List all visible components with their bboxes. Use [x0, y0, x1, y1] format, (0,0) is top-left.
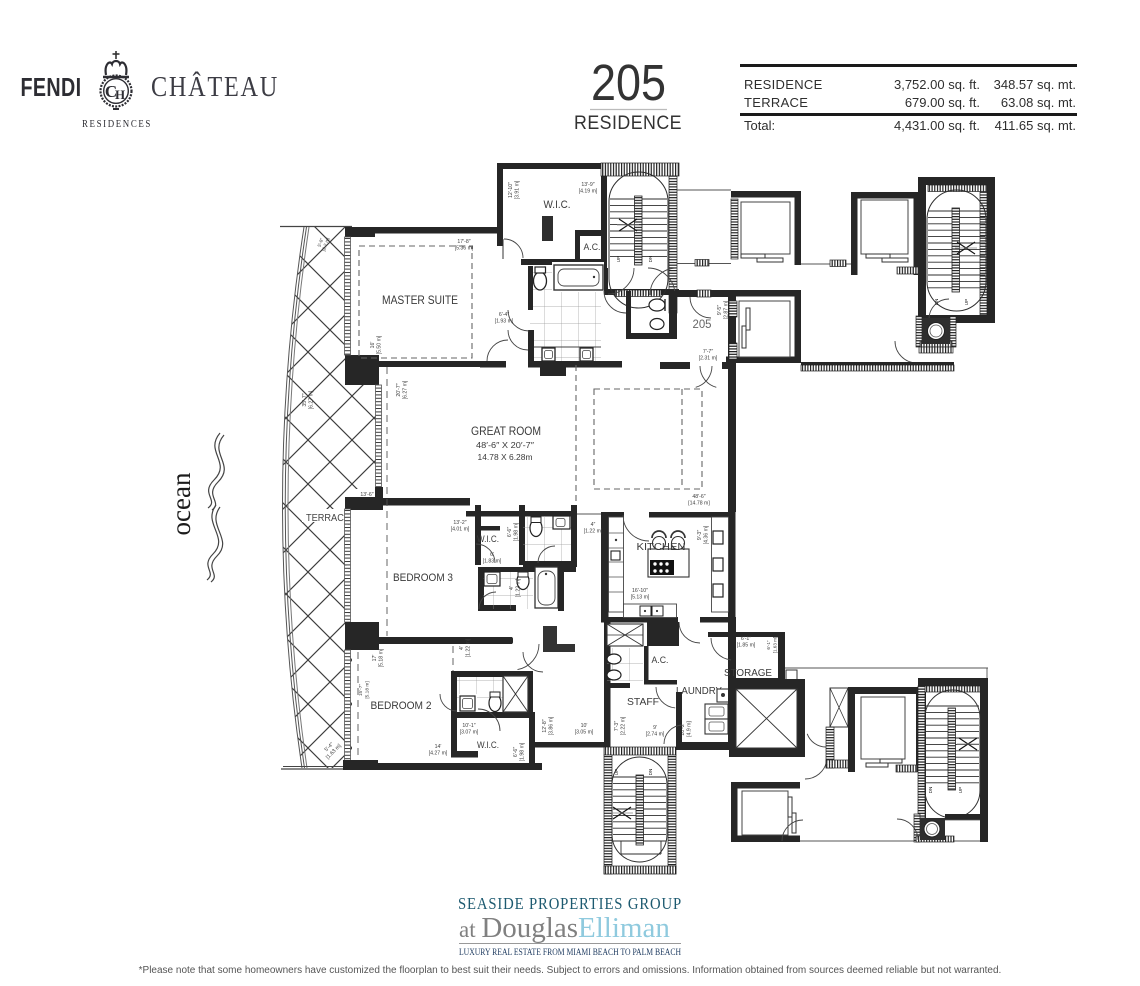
svg-text:[2.74 m]: [2.74 m] — [646, 731, 665, 737]
svg-text:[1.22 m]: [1.22 m] — [584, 528, 603, 534]
svg-text:14.78 X 6.28m: 14.78 X 6.28m — [478, 453, 533, 462]
svg-text:[5.36 m]: [5.36 m] — [455, 245, 474, 251]
svg-text:ocean: ocean — [166, 472, 196, 535]
svg-text:BEDROOM 2: BEDROOM 2 — [371, 700, 432, 712]
svg-text:*Please note that some homeown: *Please note that some homeowners have c… — [139, 965, 1002, 976]
svg-text:DN: DN — [928, 787, 933, 794]
svg-text:Total:: Total: — [744, 118, 775, 133]
svg-text:A.C.: A.C. — [584, 242, 601, 252]
svg-text:RESIDENCE: RESIDENCE — [574, 112, 682, 134]
svg-text:9′-5″: 9′-5″ — [717, 305, 723, 315]
svg-text:[1.22 m]: [1.22 m] — [515, 578, 521, 597]
svg-text:[4.19 m]: [4.19 m] — [579, 188, 598, 194]
svg-text:205: 205 — [693, 319, 712, 331]
svg-text:[5.18 m]: [5.18 m] — [378, 648, 384, 667]
svg-text:LAUNDRY: LAUNDRY — [676, 685, 722, 697]
svg-text:A.C.: A.C. — [652, 655, 669, 665]
svg-text:48′-6″: 48′-6″ — [692, 494, 705, 500]
svg-text:6′-1″: 6′-1″ — [741, 636, 751, 642]
svg-text:[3.91 m]: [3.91 m] — [514, 180, 520, 199]
svg-text:CHÂTEAU: CHÂTEAU — [151, 72, 279, 103]
svg-text:14′: 14′ — [435, 744, 442, 750]
svg-text:STORAGE: STORAGE — [724, 667, 772, 679]
svg-text:17′-8″: 17′-8″ — [457, 239, 470, 245]
svg-text:[4.36 m]: [4.36 m] — [703, 525, 709, 544]
svg-text:[1.63 m]: [1.63 m] — [772, 637, 777, 654]
svg-text:10′-1″: 10′-1″ — [462, 723, 475, 729]
svg-text:411.65 sq. mt.: 411.65 sq. mt. — [995, 118, 1076, 133]
svg-text:9′-3″: 9′-3″ — [697, 530, 703, 540]
svg-text:UP: UP — [958, 787, 963, 793]
svg-text:13′-2″: 13′-2″ — [453, 520, 466, 526]
svg-text:[6.27 m]: [6.27 m] — [402, 380, 408, 399]
svg-text:6′-6″: 6′-6″ — [513, 747, 519, 757]
svg-text:20′-7″: 20′-7″ — [396, 383, 402, 396]
svg-text:[6.27 m]: [6.27 m] — [308, 390, 314, 409]
svg-text:DN: DN — [648, 769, 653, 776]
svg-text:7′-7″: 7′-7″ — [703, 349, 713, 355]
svg-text:6′: 6′ — [490, 552, 494, 558]
svg-text:[4.27 m]: [4.27 m] — [429, 750, 448, 756]
svg-text:[1.98 m]: [1.98 m] — [513, 522, 519, 541]
svg-text:LUXURY REAL ESTATE FROM MIAMI: LUXURY REAL ESTATE FROM MIAMI BEACH TO P… — [459, 948, 681, 958]
svg-text:TERRACE: TERRACE — [306, 513, 350, 524]
svg-text:SEASIDE PROPERTIES GROUP: SEASIDE PROPERTIES GROUP — [458, 894, 682, 913]
svg-text:[14.78 m]: [14.78 m] — [688, 500, 710, 506]
svg-text:GREAT ROOM: GREAT ROOM — [471, 426, 541, 438]
svg-text:[4.9 m]: [4.9 m] — [686, 721, 692, 737]
svg-text:[5.13 m]: [5.13 m] — [631, 594, 650, 600]
svg-text:48′-6″ X 20′-7″: 48′-6″ X 20′-7″ — [476, 441, 534, 450]
svg-text:6′-6″: 6′-6″ — [507, 527, 513, 537]
svg-text:[1.85 m]: [1.85 m] — [737, 642, 756, 648]
svg-text:W.I.C.: W.I.C. — [477, 740, 499, 751]
svg-text:16′: 16′ — [370, 342, 376, 349]
svg-text:[3.05 m]: [3.05 m] — [575, 729, 594, 735]
svg-text:6′-1″: 6′-1″ — [766, 640, 771, 650]
svg-text:MASTER SUITE: MASTER SUITE — [382, 295, 458, 307]
svg-text:9′: 9′ — [653, 725, 657, 731]
svg-text:[1.98 m]: [1.98 m] — [519, 742, 525, 761]
svg-text:4″: 4″ — [591, 522, 596, 528]
svg-text:W.I.C.: W.I.C. — [477, 534, 499, 545]
svg-text:UP: UP — [614, 769, 619, 775]
svg-text:H: H — [115, 87, 125, 102]
svg-text:[3.07 m]: [3.07 m] — [460, 729, 479, 735]
svg-text:TERRACE: TERRACE — [744, 95, 808, 110]
svg-text:W.I.C.: W.I.C. — [544, 199, 571, 211]
svg-text:12′-10″: 12′-10″ — [508, 182, 514, 198]
svg-text:[2.87 m]: [2.87 m] — [723, 300, 729, 319]
svg-text:[5.50 m]: [5.50 m] — [376, 335, 382, 354]
svg-text:16′-10″: 16′-10″ — [632, 588, 648, 594]
svg-text:[2.31 m]: [2.31 m] — [699, 355, 718, 361]
svg-text:679.00 sq. ft.: 679.00 sq. ft. — [905, 95, 980, 110]
svg-text:RESIDENCES: RESIDENCES — [82, 118, 152, 130]
svg-text:STAFF: STAFF — [627, 696, 659, 708]
svg-text:[1.22 m]: [1.22 m] — [465, 638, 471, 657]
svg-text:15′-7″: 15′-7″ — [358, 684, 364, 697]
svg-text:at DouglasElliman: at DouglasElliman — [459, 912, 670, 944]
svg-text:[3.86 m]: [3.86 m] — [548, 716, 554, 735]
svg-text:[5.18 m]: [5.18 m] — [364, 681, 370, 698]
svg-text:63.08 sq. mt.: 63.08 sq. mt. — [1001, 95, 1076, 110]
svg-text:7′-3″: 7′-3″ — [614, 721, 620, 731]
svg-text:205: 205 — [591, 54, 666, 111]
svg-text:3,752.00 sq. ft.: 3,752.00 sq. ft. — [894, 77, 980, 92]
svg-text:UP: UP — [964, 299, 969, 305]
svg-text:[4.01 m]: [4.01 m] — [451, 526, 470, 532]
svg-text:KITCHEN: KITCHEN — [637, 541, 686, 553]
svg-text:13′-9″: 13′-9″ — [581, 182, 594, 188]
svg-text:4′: 4′ — [459, 646, 465, 650]
svg-text:4′: 4′ — [509, 586, 515, 590]
svg-text:DN: DN — [648, 256, 653, 263]
svg-text:4,431.00 sq. ft.: 4,431.00 sq. ft. — [894, 118, 980, 133]
svg-text:[2.22 m]: [2.22 m] — [620, 716, 626, 735]
svg-text:10′: 10′ — [581, 723, 588, 729]
svg-text:BEDROOM 3: BEDROOM 3 — [393, 572, 453, 584]
svg-text:UP: UP — [616, 256, 621, 262]
svg-text:FENDI: FENDI — [21, 72, 82, 102]
svg-text:12′-8″: 12′-8″ — [542, 719, 548, 732]
svg-text:35′-7″: 35′-7″ — [302, 393, 308, 406]
svg-text:17′: 17′ — [372, 655, 378, 662]
svg-text:RESIDENCE: RESIDENCE — [744, 77, 823, 92]
svg-text:348.57 sq. mt.: 348.57 sq. mt. — [994, 77, 1076, 92]
svg-text:[1.83 m]: [1.83 m] — [483, 558, 502, 564]
